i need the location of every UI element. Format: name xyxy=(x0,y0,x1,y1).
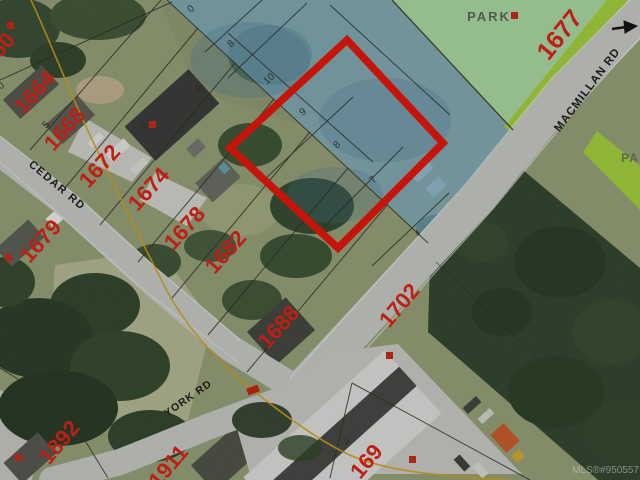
photo-grain-overlay xyxy=(0,0,640,480)
aerial-parcel-map: 0 0 8 10 9 9 8 7 5 6 A 60 1664 1668 1672… xyxy=(0,0,640,480)
map-canvas: 0 0 8 10 9 9 8 7 5 6 A 60 1664 1668 1672… xyxy=(0,0,640,480)
